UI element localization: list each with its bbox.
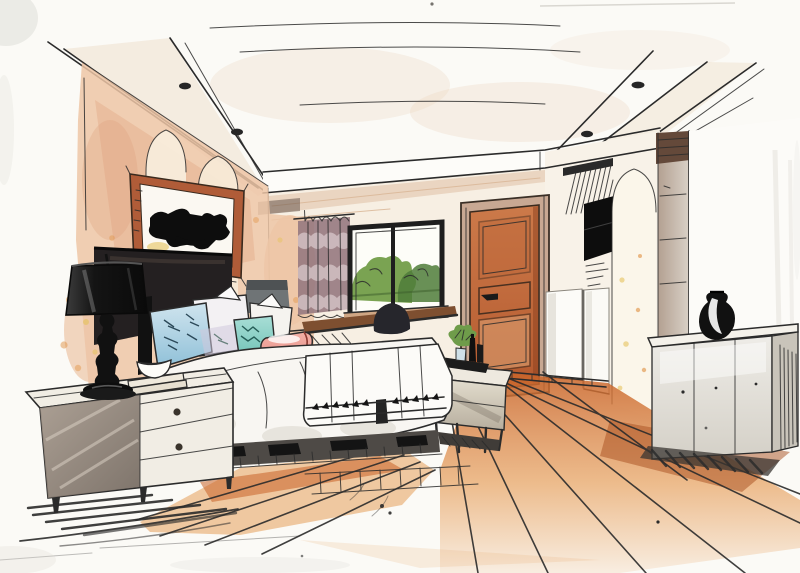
column-cabinet <box>656 131 690 350</box>
console-sideboard <box>648 324 798 459</box>
door-top-panel <box>479 216 530 279</box>
bedroom-sketch-illustration <box>0 0 800 573</box>
tv-screen <box>584 196 614 261</box>
arch-niche-right <box>612 169 656 420</box>
sketch-page: Hand-drawn interior design sketch of a b… <box>0 0 800 573</box>
drawer-knob-bottom <box>175 443 182 450</box>
curtain <box>294 211 354 318</box>
tassel-throw <box>304 344 452 426</box>
drawer-knob-top <box>173 408 180 415</box>
